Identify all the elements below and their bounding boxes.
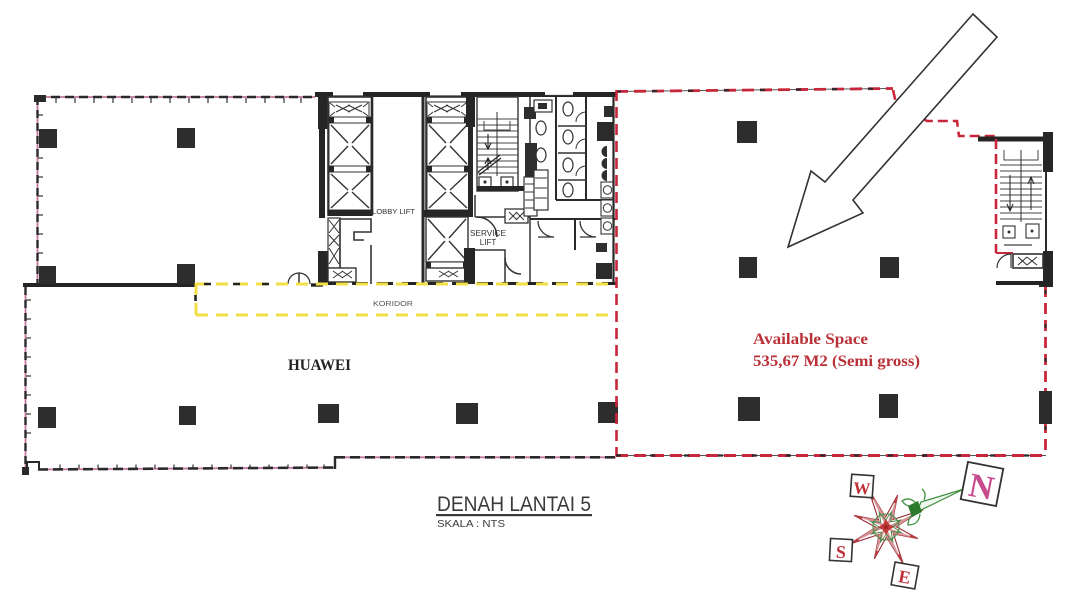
- svg-text:LIFT: LIFT: [480, 238, 497, 247]
- svg-text:535,67 M2 (Semi gross): 535,67 M2 (Semi gross): [753, 353, 920, 370]
- svg-text:LOBBY LIFT: LOBBY LIFT: [372, 207, 415, 216]
- svg-text:SKALA : NTS: SKALA : NTS: [437, 518, 505, 530]
- svg-text:W: W: [853, 478, 871, 498]
- svg-text:S: S: [835, 542, 846, 562]
- svg-text:DENAH LANTAI 5: DENAH LANTAI 5: [437, 493, 591, 516]
- svg-text:KORIDOR: KORIDOR: [373, 299, 414, 308]
- svg-text:HUAWEI: HUAWEI: [288, 357, 351, 374]
- svg-text:SERVICE: SERVICE: [470, 229, 506, 238]
- svg-text:Available Space: Available Space: [753, 331, 868, 348]
